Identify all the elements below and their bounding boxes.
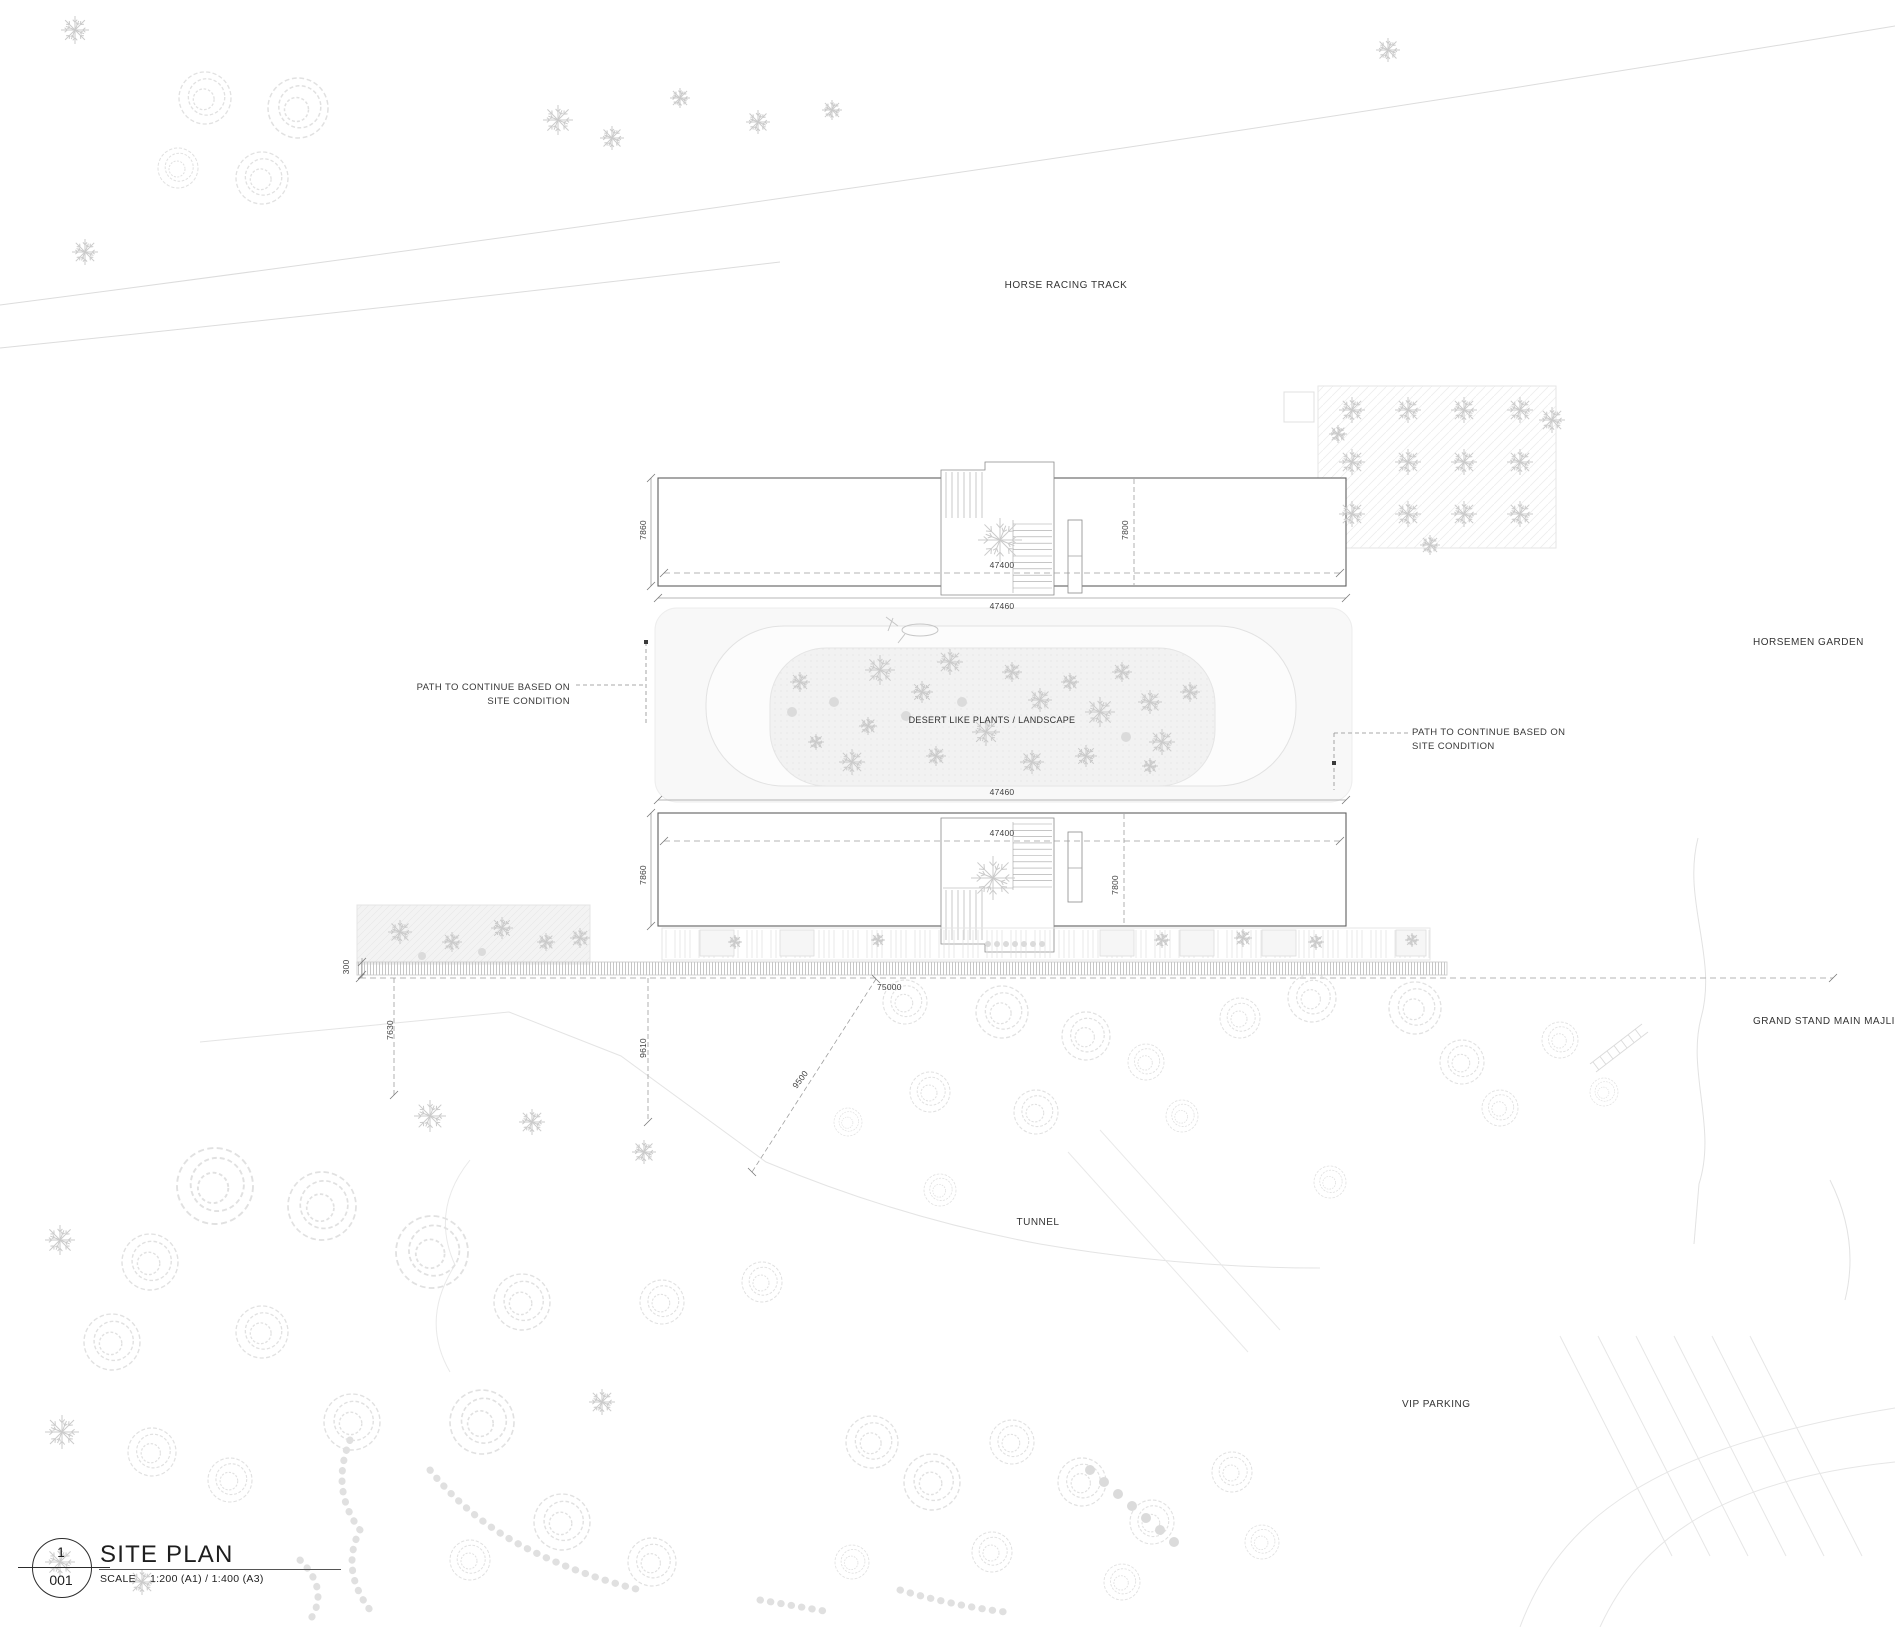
label-tunnel: TUNNEL [988,1217,1088,1228]
pebble-paths [300,1440,1005,1620]
paved-walkway [357,962,1447,975]
annotation-path-left-line1: PATH TO CONTINUE BASED ON [390,681,570,695]
annotation-path-right-line2: SITE CONDITION [1412,740,1602,754]
dim-300-walkway: 300 [341,951,353,983]
dim-75000-total: 75000 [877,982,902,992]
dim-47400-bottom: 47400 [972,828,1032,838]
scale-value: 1:200 (A1) / 1:400 (A3) [150,1573,264,1585]
site-plan-canvas: HORSE RACING TRACK HORSEMEN GARDEN GRAND… [0,0,1895,1627]
central-landscape-band [655,608,1352,802]
annotation-path-right: PATH TO CONTINUE BASED ON SITE CONDITION [1412,726,1602,753]
detail-number: 1 [32,1544,90,1560]
label-desert-plants: DESERT LIKE PLANTS / LANDSCAPE [892,715,1092,725]
scale-label: SCALE [100,1573,136,1585]
label-horse-racing-track: HORSE RACING TRACK [966,280,1166,291]
site-plan-drawing [0,0,1895,1627]
dim-47460-upper: 47460 [972,601,1032,611]
drawing-title: SITE PLAN [100,1541,234,1569]
racing-track-boundary-lines [0,26,1895,348]
dim-7630-offset: 7630 [385,1010,397,1050]
title-underline [99,1569,341,1570]
drawing-scale: SCALE1:200 (A1) / 1:400 (A3) [100,1573,264,1585]
detail-circle-divider [18,1567,110,1568]
annotation-path-right-line1: PATH TO CONTINUE BASED ON [1412,726,1602,740]
sheet-number: 001 [32,1572,90,1588]
label-grand-stand-main-majlis: GRAND STAND MAIN MAJLIS [1753,1016,1895,1027]
terrain-contours [200,1012,1320,1372]
dim-7800-bottom: 7800 [1110,865,1122,905]
label-horsemen-garden: HORSEMEN GARDEN [1753,637,1864,648]
label-vip-parking: VIP PARKING [1402,1399,1470,1410]
annotation-path-left-line2: SITE CONDITION [390,695,570,709]
stairs-ramp-glyph [1590,1024,1648,1072]
annotation-path-left: PATH TO CONTINUE BASED ON SITE CONDITION [390,681,570,708]
dim-47400-top: 47400 [972,560,1032,570]
dim-7800-top: 7800 [1120,510,1132,550]
vip-parking-striping [1520,1336,1895,1627]
dim-7860-top: 7860 [638,510,650,550]
dim-7860-bottom: 7860 [638,855,650,895]
dim-9610-offset: 9610 [638,1028,650,1068]
tree-symbols [45,16,1618,1600]
right-site-boundary [1694,838,1850,1300]
dim-47460-lower: 47460 [972,787,1032,797]
